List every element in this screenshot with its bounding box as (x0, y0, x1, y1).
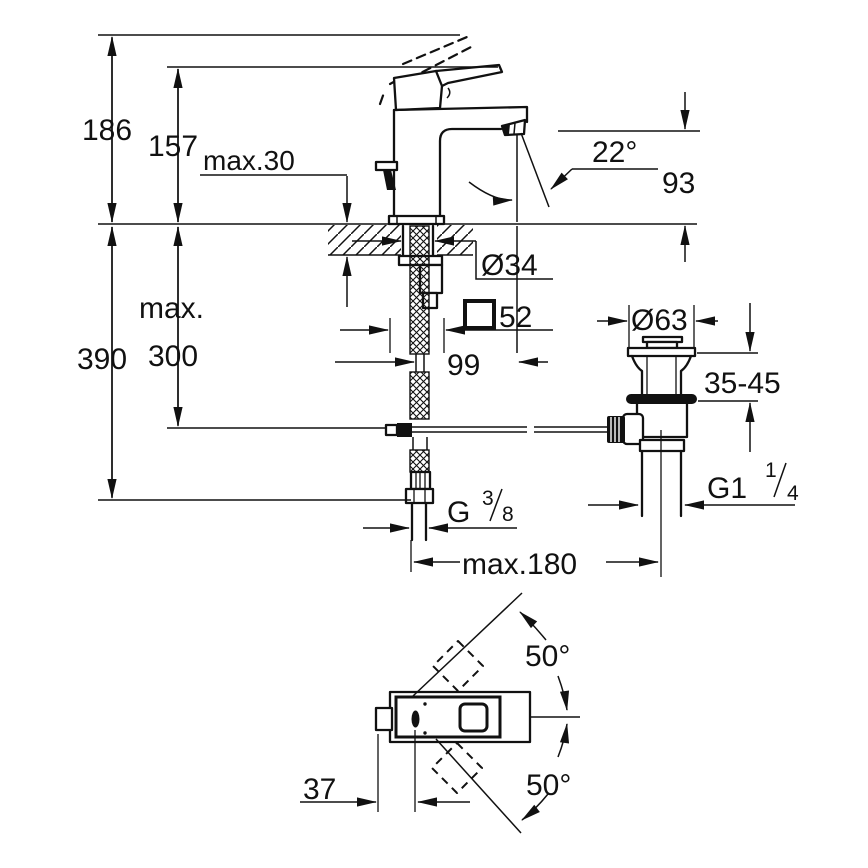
square-symbol-icon (465, 301, 494, 328)
waste-seal-ring (626, 394, 697, 404)
label-35-45: 35-45 (704, 367, 781, 400)
label-50deg-upper: 50° (525, 640, 570, 673)
waste-flange (628, 348, 695, 356)
technical-drawing-page: 186 157 max.30 22° 93 max. 300 390 Ø34 5… (0, 0, 868, 868)
waste-thread-base: G1 (707, 472, 747, 505)
waste-thread-denominator: 4 (787, 482, 799, 505)
label-93: 93 (662, 167, 695, 200)
faucet-body (376, 107, 527, 224)
supply-thread-denominator: 8 (502, 503, 514, 526)
hose-threaded-collar (411, 472, 430, 489)
waste-body (637, 404, 687, 437)
label-max180: max.180 (462, 548, 577, 581)
label-186: 186 (82, 114, 132, 147)
label-52: 52 (499, 301, 532, 334)
label-22deg: 22° (592, 136, 637, 169)
aerator (502, 120, 525, 135)
pull-rod-knob-top (376, 708, 392, 730)
deck-hatch-right (437, 225, 473, 255)
detail-dot-upper (423, 702, 426, 705)
faucet-dimension-drawing: 186 157 max.30 22° 93 max. 300 390 Ø34 5… (0, 0, 868, 868)
flex-hose-lower (410, 450, 429, 472)
label-50deg-lower: 50° (526, 769, 571, 802)
hose-connection-nut (406, 489, 433, 503)
detail-dot-lower (423, 731, 426, 734)
hose-end-tube (412, 503, 426, 540)
swivel-limit-line-lower (436, 739, 521, 833)
dimension-max30 (200, 175, 347, 307)
label-300: 300 (148, 340, 198, 373)
label-157: 157 (148, 130, 198, 163)
faucet-front-view (376, 37, 527, 224)
label-99: 99 (447, 349, 480, 382)
supply-thread-base: G (447, 496, 470, 529)
lever-rotated-position-lower (432, 743, 482, 793)
lever-rotated-position-upper (433, 641, 483, 691)
coupling-band (640, 440, 684, 451)
waste-thread-numerator: 1 (765, 459, 777, 482)
lever-pivot-dot (412, 711, 420, 728)
supply-thread-numerator: 3 (482, 487, 494, 510)
swing-direction-arrow (469, 182, 512, 200)
flex-hose-mid (410, 372, 429, 419)
base-plate (389, 216, 444, 224)
label-d63: Ø63 (631, 304, 688, 337)
label-supply-thread: G 3 8 (447, 487, 514, 529)
label-max: max. (139, 292, 204, 325)
pull-rod-linkage (386, 423, 609, 437)
popup-waste-assembly (607, 337, 697, 577)
knurled-knob (607, 416, 625, 443)
lever-handle (394, 65, 502, 110)
label-max30: max.30 (203, 145, 295, 176)
label-390: 390 (77, 343, 127, 376)
deck-hatch-left (328, 225, 401, 255)
water-stream-line (521, 133, 549, 207)
label-d34: Ø34 (481, 249, 538, 282)
label-37: 37 (303, 773, 336, 806)
label-waste-thread: G1 1 4 (707, 459, 799, 505)
aerator-top (460, 704, 487, 731)
mounting-deck (98, 224, 697, 255)
flex-hose-upper (410, 226, 429, 354)
